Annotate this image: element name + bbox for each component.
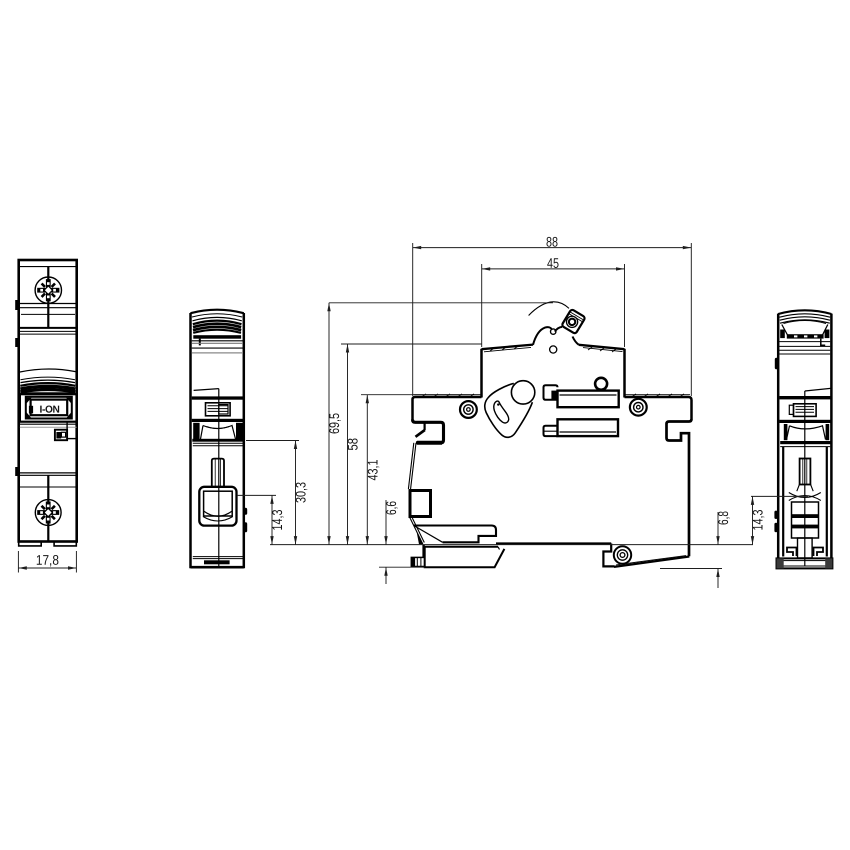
svg-text:30,3: 30,3 <box>293 482 309 503</box>
svg-text:88: 88 <box>546 234 558 250</box>
svg-text:17,8: 17,8 <box>36 552 59 568</box>
svg-text:14,3: 14,3 <box>269 509 285 530</box>
svg-text:I-ON: I-ON <box>40 405 60 416</box>
svg-text:45: 45 <box>547 255 559 271</box>
svg-text:58: 58 <box>345 438 361 451</box>
svg-text:14,3: 14,3 <box>750 509 766 530</box>
svg-text:43,1: 43,1 <box>364 459 380 480</box>
svg-text:6,6: 6,6 <box>383 501 399 515</box>
svg-text:6,8: 6,8 <box>715 511 731 525</box>
svg-text:69,5: 69,5 <box>326 413 342 434</box>
